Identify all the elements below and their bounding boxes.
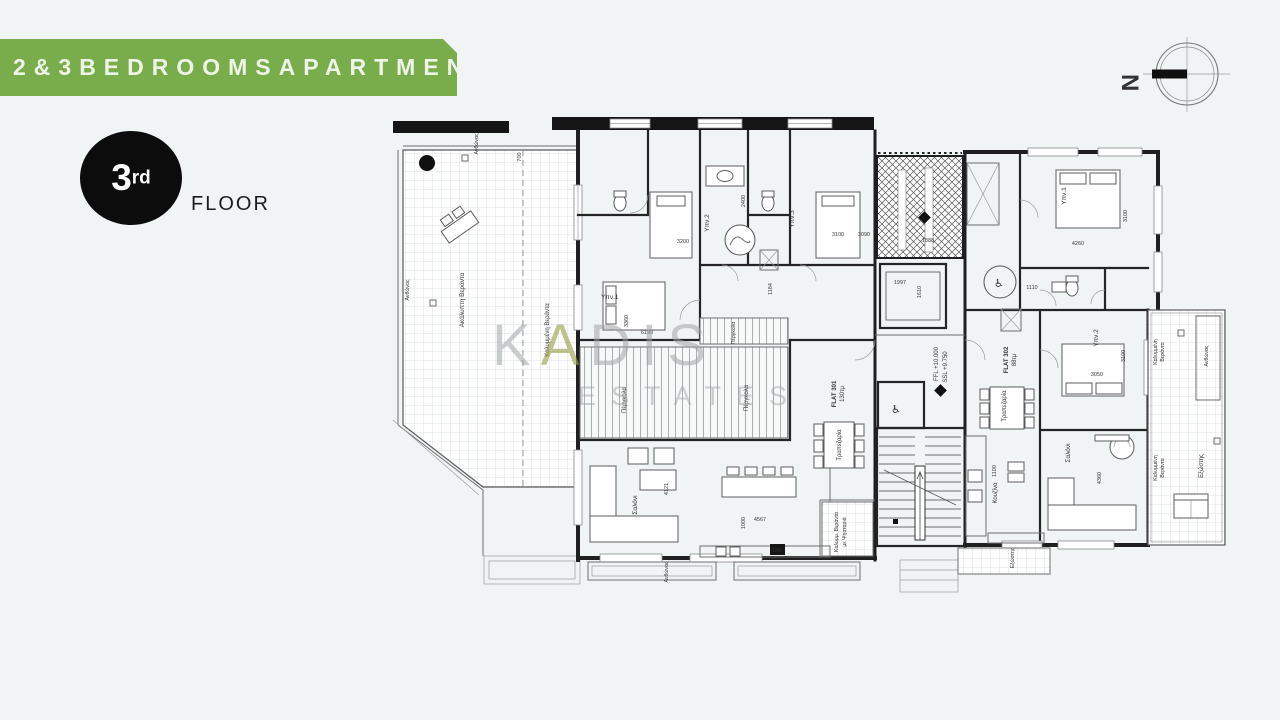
room-label: Υπν.1 <box>1061 187 1068 205</box>
room-label: Ακάλυπτη Βεράντα <box>458 272 466 327</box>
dimension: 1184 <box>768 283 774 295</box>
dishwasher-label: DW <box>773 548 782 554</box>
dimension: 1997 <box>894 280 906 286</box>
dimension: 2400 <box>741 195 747 207</box>
planter-label: Ανθώνας <box>405 279 411 300</box>
planter-label: Ανθώνας <box>664 561 670 582</box>
flat-area: 130τμ <box>840 386 846 402</box>
dimension: 1610 <box>917 286 923 298</box>
balcony-label: Εξώστης <box>1010 547 1016 568</box>
bottom-planters <box>588 548 1050 580</box>
room-label: Υπν.3 <box>789 210 796 228</box>
dimension: 3100 <box>832 232 844 238</box>
planter-label: Ανθώνας <box>474 133 480 154</box>
balcony-label: Εξώστης <box>1199 454 1205 478</box>
dimension: 6190 <box>641 330 653 336</box>
dimension: 4260 <box>1072 241 1084 247</box>
room-label: Καλυμμένη <box>1152 339 1159 365</box>
left-terrace <box>393 146 580 584</box>
dimension: 3360 <box>624 315 630 327</box>
page: { "banner": { "text": "2&3BEDROOMSAPARTM… <box>0 0 1280 720</box>
dimension: 1888 <box>922 238 934 244</box>
small-balcony <box>958 548 1050 574</box>
dimension: 700 <box>517 152 523 161</box>
room-label: Καλυμμ. Βεράντα <box>833 512 840 552</box>
room-label: με Ψησταριά <box>841 517 848 546</box>
pergola-label: Πέργκολα <box>743 384 750 410</box>
room-label: Τραπεζαρία <box>837 429 843 461</box>
wheelchair-icon: ♿ <box>994 278 1004 290</box>
dimension: 1100 <box>992 465 998 477</box>
dimension: 1000 <box>741 517 747 529</box>
room-label: Καλυμμένη Βεράντα <box>544 303 551 357</box>
pergola-label: Πέργκολα <box>730 322 737 344</box>
dimension: 4121 <box>664 483 670 495</box>
room-label: Βεράντα <box>1159 458 1166 477</box>
dimension: 4360 <box>1097 472 1103 484</box>
decorative-figure <box>725 225 755 255</box>
parapet-wall <box>393 121 509 133</box>
lift-room <box>880 264 946 328</box>
core: ♿ <box>875 152 965 592</box>
dimension: 1110 <box>1026 285 1037 291</box>
flat-id: FLAT 301 <box>832 380 838 407</box>
planter-label: Ανθώνας <box>1204 345 1210 366</box>
pergola-label: Πέργκολα <box>621 386 628 412</box>
room-label: Υπν.2 <box>704 214 711 232</box>
room-label: Τραπεζαρία <box>1002 390 1008 422</box>
flat-id: FLAT 302 <box>1004 346 1010 373</box>
wheelchair-icon: ♿ <box>891 404 901 416</box>
shaft <box>877 156 963 258</box>
flat-area: 88τμ <box>1012 353 1018 366</box>
room-label: Υπν.1 <box>601 294 619 301</box>
room-label: Σαλόνι <box>1064 443 1072 463</box>
room-label: Σαλόνι <box>631 495 639 515</box>
level-label: SSL +9.750 <box>943 351 949 383</box>
compass-north-label: N <box>1116 74 1143 91</box>
staircase <box>877 428 965 546</box>
dimension: 3090 <box>858 232 870 238</box>
floor-plan: N <box>0 0 1280 720</box>
flat-301 <box>574 119 875 562</box>
compass: N <box>1116 37 1230 112</box>
room-label: Κουζίνα <box>993 482 999 504</box>
room-label: Υπν.2 <box>1093 329 1100 347</box>
column <box>419 155 435 171</box>
room-label: Καλυμμένη <box>1152 455 1159 481</box>
dimension: 3100 <box>1121 350 1127 362</box>
dimension: 3100 <box>1123 210 1129 222</box>
dimension: 3050 <box>1091 372 1103 378</box>
accessible-wc <box>878 382 924 428</box>
room-label: Βεράντα <box>1159 342 1166 361</box>
dimension: 4567 <box>754 517 766 523</box>
furniture-302 <box>966 170 1136 543</box>
dimension: 3200 <box>677 239 689 245</box>
level-label: FFL +10.000 <box>934 346 940 381</box>
compass-needle <box>1152 70 1187 79</box>
